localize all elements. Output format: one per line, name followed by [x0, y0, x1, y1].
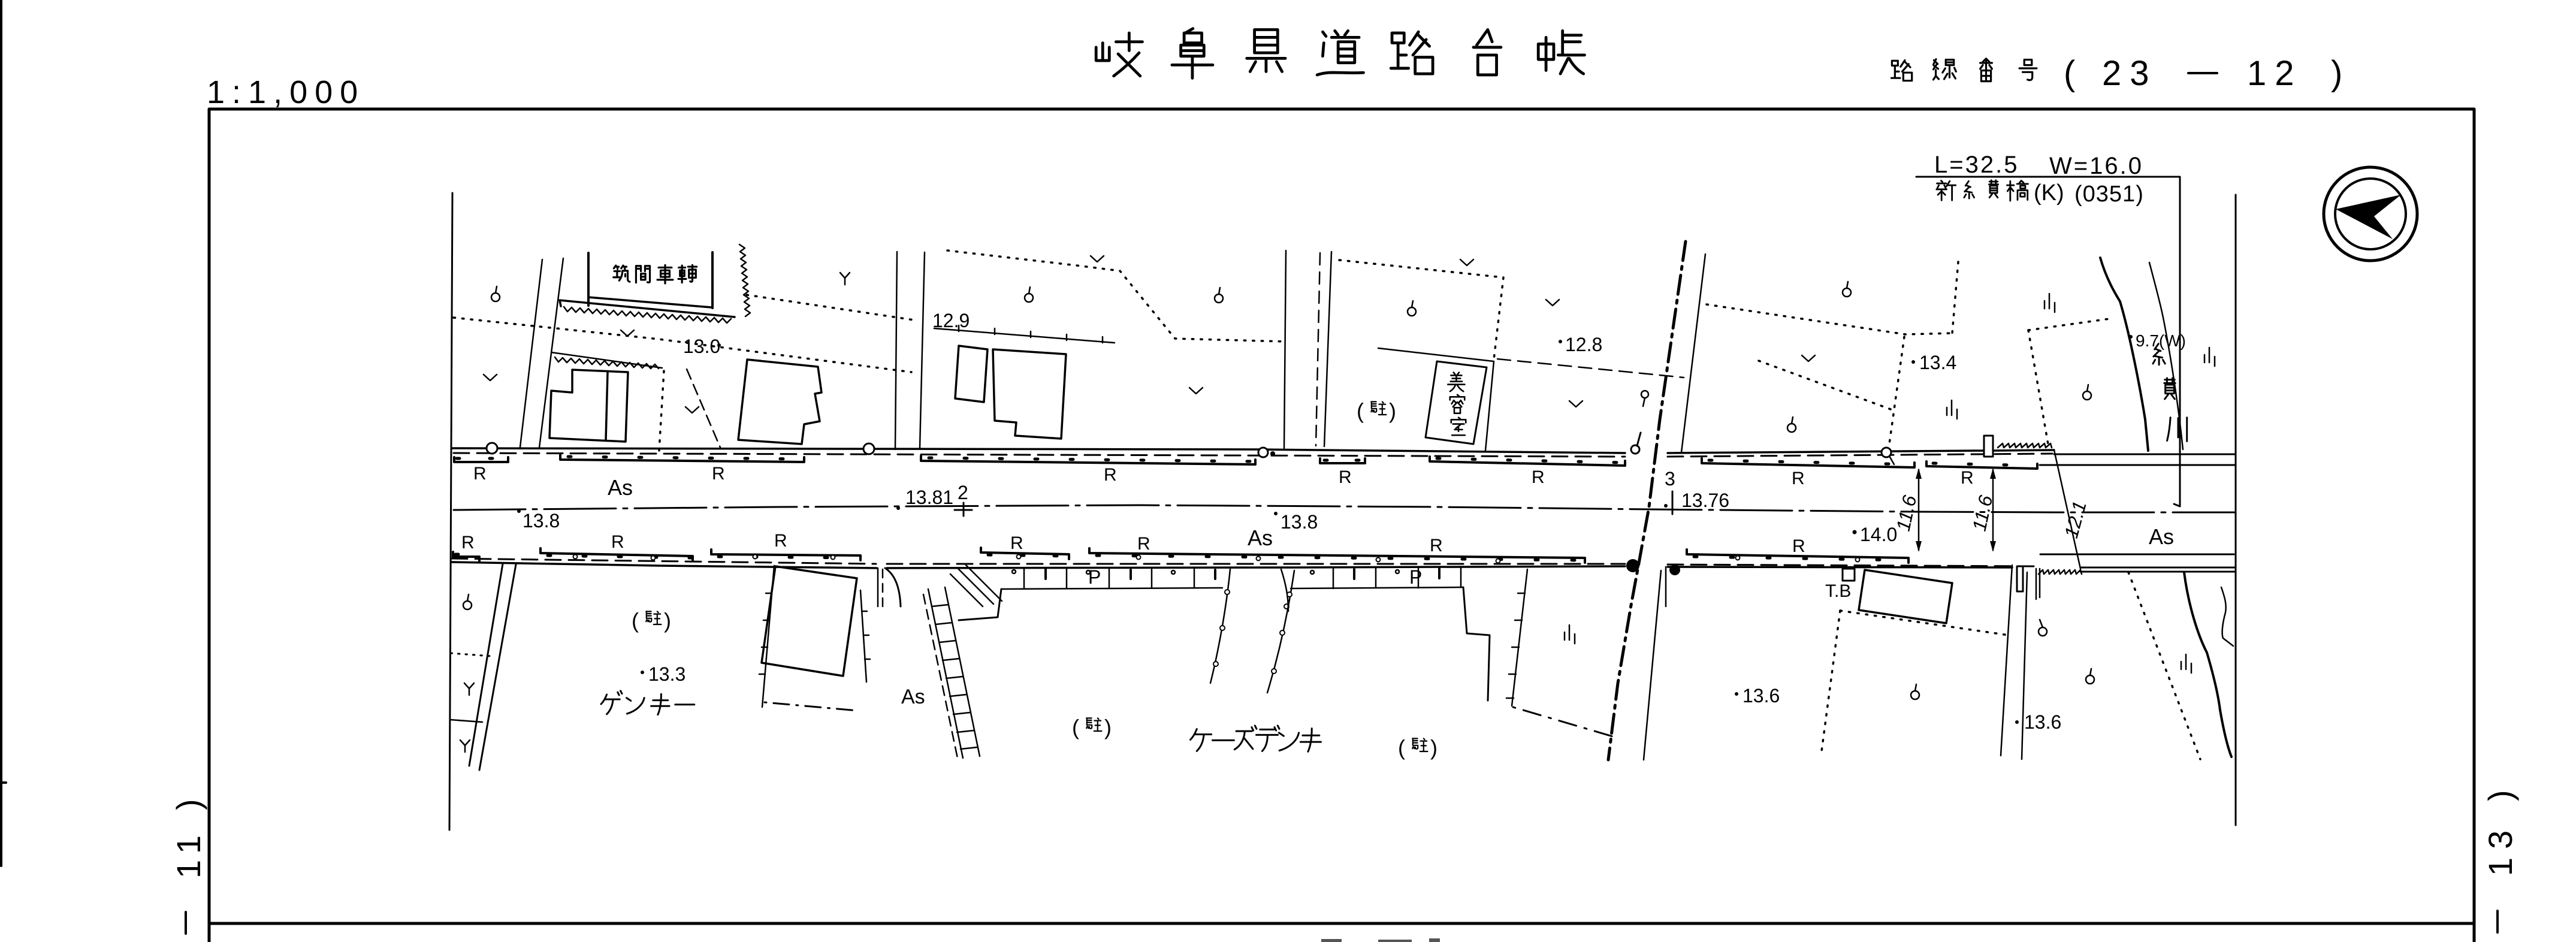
svg-text:3: 3	[1665, 468, 1675, 490]
svg-text:R: R	[611, 532, 624, 552]
svg-text:R: R	[1339, 467, 1352, 487]
svg-text:T.B: T.B	[1825, 581, 1851, 601]
svg-text:R: R	[473, 464, 487, 484]
svg-text:R: R	[1961, 468, 1974, 488]
svg-text:(K): (K)	[2034, 180, 2064, 206]
svg-text:(: (	[1357, 398, 1364, 423]
svg-text:11: 11	[170, 827, 207, 878]
svg-text:12.8: 12.8	[1565, 334, 1602, 355]
svg-text:(0351): (0351)	[2074, 182, 2144, 207]
svg-text:As: As	[1248, 526, 1273, 550]
svg-text:As: As	[608, 475, 633, 500]
svg-text:13.81: 13.81	[905, 487, 953, 508]
svg-text:): )	[1104, 715, 1112, 739]
svg-text:13.76: 13.76	[1681, 490, 1729, 511]
svg-text:23: 23	[2102, 54, 2158, 93]
svg-text:R: R	[774, 531, 787, 551]
svg-text:(: (	[1072, 715, 1079, 739]
svg-text:(: (	[632, 608, 639, 633]
svg-text:R: R	[1430, 536, 1443, 555]
svg-text:13: 13	[2481, 822, 2519, 876]
svg-text:1:1,000: 1:1,000	[207, 74, 365, 110]
svg-text:R: R	[1010, 533, 1023, 553]
svg-text:(: (	[2064, 54, 2075, 93]
svg-text:13.3: 13.3	[648, 663, 685, 685]
svg-text:As: As	[2149, 524, 2174, 549]
svg-text:): )	[2331, 54, 2342, 93]
svg-text:R: R	[1104, 465, 1117, 485]
svg-text:13.6: 13.6	[1743, 685, 1780, 707]
svg-text:): )	[664, 608, 671, 633]
svg-text:): )	[2481, 790, 2519, 801]
svg-text:R: R	[1532, 467, 1545, 487]
svg-text:9.7(W): 9.7(W)	[2136, 331, 2186, 350]
svg-text:As: As	[901, 686, 925, 708]
svg-text:W=16.0: W=16.0	[2049, 153, 2143, 179]
svg-text:P: P	[1088, 566, 1101, 588]
svg-text:P: P	[1409, 566, 1422, 588]
svg-text:13.0: 13.0	[683, 336, 720, 357]
svg-text:13.8: 13.8	[523, 510, 560, 532]
svg-text:): )	[170, 799, 207, 810]
svg-text:L=32.5: L=32.5	[1934, 152, 2019, 178]
svg-text:): )	[1389, 398, 1396, 423]
svg-text:2: 2	[958, 482, 968, 503]
svg-text:(: (	[1398, 735, 1405, 760]
svg-text:): )	[1430, 735, 1438, 760]
svg-text:R: R	[461, 533, 475, 552]
svg-text:R: R	[1137, 534, 1150, 554]
svg-text:R: R	[1792, 469, 1805, 488]
svg-text:13.8: 13.8	[1281, 511, 1318, 533]
svg-text:R: R	[1792, 536, 1805, 556]
svg-text:13.4: 13.4	[1919, 352, 1956, 373]
svg-text:13.6: 13.6	[2024, 711, 2061, 733]
svg-text:12: 12	[2247, 54, 2303, 93]
svg-text:14.0: 14.0	[1860, 524, 1897, 545]
svg-text:R: R	[712, 464, 725, 484]
